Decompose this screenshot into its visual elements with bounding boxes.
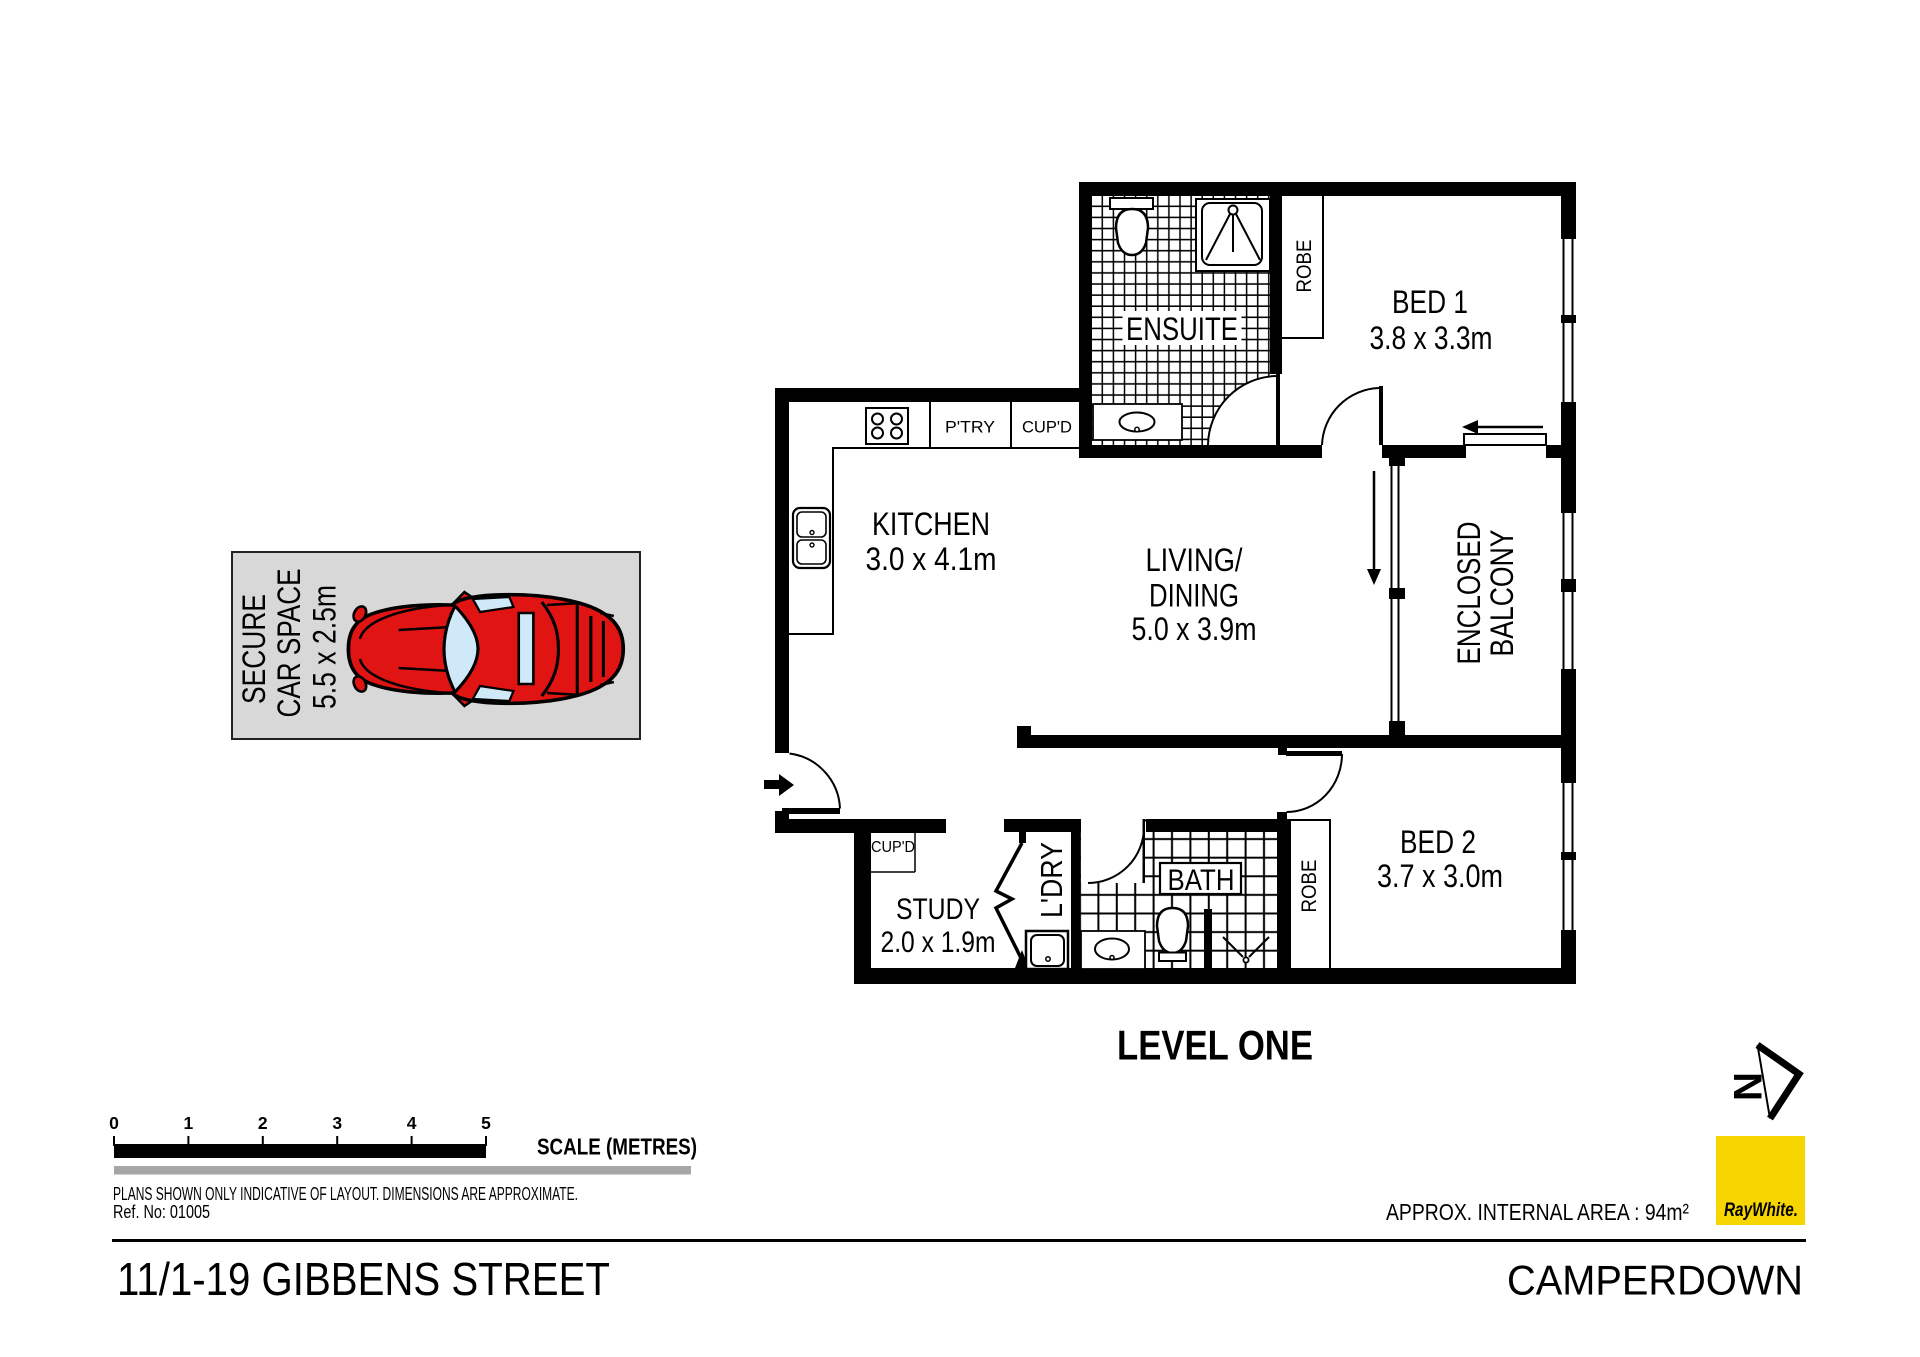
svg-text:RayWhite.: RayWhite. [1724,1200,1798,1221]
svg-text:LEVEL ONE: LEVEL ONE [1117,1022,1313,1069]
svg-text:ROBE: ROBE [1298,860,1321,913]
svg-text:SCALE (METRES): SCALE (METRES) [537,1134,697,1160]
svg-text:0: 0 [109,1113,119,1133]
svg-text:5.5 x 2.5m: 5.5 x 2.5m [307,585,343,709]
svg-text:4: 4 [407,1113,417,1133]
svg-text:BATH: BATH [1168,864,1235,897]
svg-text:1: 1 [184,1113,194,1133]
svg-text:BALCONY: BALCONY [1484,530,1520,657]
svg-text:STUDY: STUDY [896,893,980,926]
svg-text:Ref. No: 01005: Ref. No: 01005 [113,1202,210,1222]
svg-text:L'DRY: L'DRY [1034,842,1069,918]
svg-text:CUP'D: CUP'D [871,839,915,856]
svg-text:LIVING/: LIVING/ [1146,542,1243,578]
svg-text:2: 2 [258,1113,268,1133]
svg-text:CAR SPACE: CAR SPACE [271,569,307,718]
svg-text:BED 1: BED 1 [1392,284,1468,320]
svg-text:KITCHEN: KITCHEN [872,506,990,542]
svg-text:P'TRY: P'TRY [945,418,995,437]
svg-text:3: 3 [332,1113,342,1133]
svg-text:3.0 x 4.1m: 3.0 x 4.1m [866,541,997,577]
svg-text:APPROX. INTERNAL AREA : 94m²: APPROX. INTERNAL AREA : 94m² [1386,1199,1689,1225]
svg-text:3.7 x 3.0m: 3.7 x 3.0m [1377,858,1503,894]
svg-text:PLANS SHOWN ONLY INDICATIVE OF: PLANS SHOWN ONLY INDICATIVE OF LAYOUT. D… [113,1184,578,1204]
svg-text:ROBE: ROBE [1293,240,1316,293]
svg-text:2.0 x 1.9m: 2.0 x 1.9m [881,926,996,959]
svg-text:BED 2: BED 2 [1400,824,1476,860]
svg-text:SECURE: SECURE [236,594,272,704]
svg-text:DINING: DINING [1149,578,1239,614]
svg-text:3.8 x 3.3m: 3.8 x 3.3m [1370,320,1493,356]
svg-text:ENSUITE: ENSUITE [1126,311,1238,347]
svg-text:5: 5 [481,1113,491,1133]
svg-text:CAMPERDOWN: CAMPERDOWN [1507,1257,1803,1304]
svg-text:5.0 x 3.9m: 5.0 x 3.9m [1132,611,1257,647]
svg-text:11/1-19 GIBBENS STREET: 11/1-19 GIBBENS STREET [117,1253,610,1305]
svg-text:CUP'D: CUP'D [1022,418,1072,437]
svg-text:ENCLOSED: ENCLOSED [1451,522,1487,665]
